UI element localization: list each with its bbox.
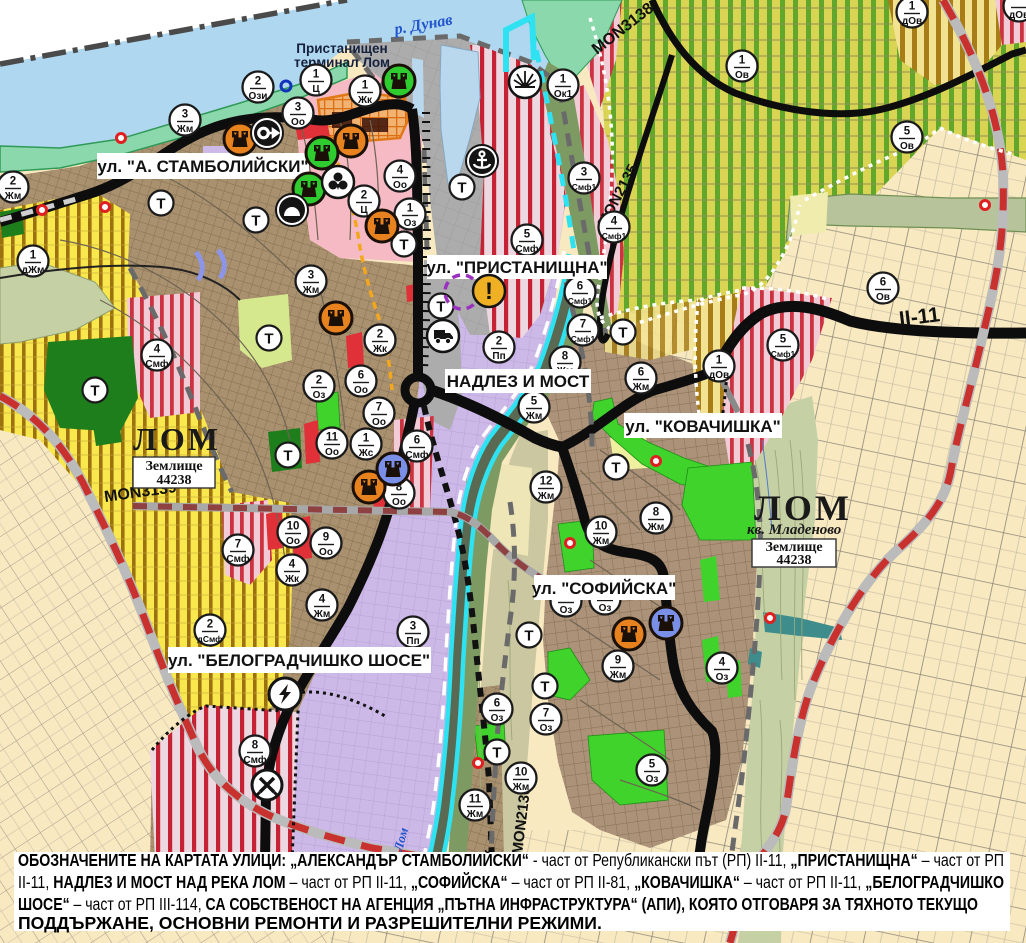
svg-text:7: 7	[580, 319, 586, 331]
svg-text:Смф: Смф	[515, 243, 538, 255]
svg-text:Т: Т	[457, 180, 466, 197]
svg-text:Оз: Оз	[646, 774, 659, 785]
svg-text:Т: Т	[90, 383, 99, 400]
svg-text:8: 8	[252, 740, 259, 752]
svg-text:дСмф: дСмф	[197, 634, 223, 644]
svg-text:Оз: Оз	[599, 603, 612, 614]
svg-text:4: 4	[289, 559, 296, 571]
svg-text:ОБОЗНАЧЕНИТЕ НА КАРТАТА УЛИЦИ:: ОБОЗНАЧЕНИТЕ НА КАРТАТА УЛИЦИ: „АЛЕКСАНД…	[18, 849, 1004, 870]
svg-text:12: 12	[540, 476, 553, 488]
svg-text:6: 6	[638, 367, 644, 379]
svg-text:10: 10	[515, 767, 528, 779]
svg-text:Жм: Жм	[632, 382, 649, 393]
svg-text:Смф: Смф	[226, 553, 249, 565]
svg-text:5: 5	[524, 229, 531, 241]
svg-text:Жм: Жм	[647, 522, 664, 533]
svg-text:Т: Т	[492, 745, 501, 762]
svg-text:!: !	[485, 278, 493, 305]
svg-text:2: 2	[255, 76, 261, 88]
svg-text:Жк: Жк	[357, 95, 373, 106]
svg-text:дОв: дОв	[902, 16, 922, 27]
svg-text:9: 9	[323, 532, 329, 544]
svg-text:3: 3	[410, 621, 416, 633]
svg-text:Оо: Оо	[325, 447, 339, 458]
svg-text:Оо: Оо	[286, 536, 300, 547]
svg-text:Жм: Жм	[313, 609, 330, 620]
svg-text:6: 6	[577, 281, 583, 293]
svg-text:Ов: Ов	[876, 292, 890, 303]
svg-text:Смф1: Смф1	[571, 334, 596, 344]
svg-text:Оз: Оз	[560, 605, 573, 616]
svg-text:Оз: Оз	[491, 713, 504, 724]
svg-text:2: 2	[361, 190, 367, 202]
svg-text:ул. "БЕЛОГРАДЧИШКО ШОСЕ": ул. "БЕЛОГРАДЧИШКО ШОСЕ"	[168, 651, 430, 670]
svg-text:Т: Т	[283, 448, 292, 465]
svg-text:Смф: Смф	[405, 449, 428, 461]
svg-text:6: 6	[494, 698, 500, 710]
svg-text:Ози: Ози	[249, 91, 268, 102]
svg-text:7: 7	[235, 539, 241, 551]
svg-text:ул. "КОВАЧИШКА": ул. "КОВАЧИШКА"	[625, 417, 781, 436]
svg-text:1: 1	[363, 433, 370, 445]
svg-text:2: 2	[496, 336, 502, 348]
svg-text:ПОДДЪРЖАНЕ, ОСНОВНИ РЕМОНТИ И: ПОДДЪРЖАНЕ, ОСНОВНИ РЕМОНТИ И РАЗРЕШИТЕЛ…	[18, 913, 602, 933]
svg-text:Ов: Ов	[900, 141, 914, 152]
svg-text:44238: 44238	[157, 473, 192, 488]
svg-text:ул. "СОФИЙСКА": ул. "СОФИЙСКА"	[532, 579, 677, 598]
svg-text:Пристанищен: Пристанищен	[296, 41, 387, 56]
svg-text:ул. "А. СТАМБОЛИЙСКИ": ул. "А. СТАМБОЛИЙСКИ"	[97, 157, 308, 176]
svg-text:1: 1	[407, 203, 414, 215]
svg-text:Т: Т	[251, 213, 260, 230]
svg-text:1: 1	[909, 1, 916, 13]
svg-text:2: 2	[10, 176, 16, 188]
svg-text:дОв: дОв	[1009, 10, 1026, 21]
svg-text:Смф1: Смф1	[568, 296, 593, 306]
svg-text:6: 6	[358, 370, 364, 382]
svg-text:Смф1: Смф1	[602, 231, 627, 241]
svg-text:2: 2	[377, 329, 383, 341]
svg-text:Оз: Оз	[404, 218, 417, 229]
svg-text:ул. "ПРИСТАНИЩНА": ул. "ПРИСТАНИЩНА"	[426, 258, 607, 277]
svg-text:Жм: Жм	[609, 670, 626, 681]
svg-text:6: 6	[880, 277, 886, 289]
svg-text:Т: Т	[156, 196, 165, 213]
svg-text:Оз: Оз	[540, 723, 553, 734]
svg-text:Жм: Жм	[4, 191, 21, 202]
svg-text:НАДЛЕЗ И МОСТ: НАДЛЕЗ И МОСТ	[447, 372, 590, 391]
svg-text:2: 2	[207, 619, 213, 631]
svg-text:Т: Т	[618, 325, 627, 342]
svg-text:5: 5	[649, 759, 656, 771]
svg-text:Жм: Жм	[525, 411, 542, 422]
svg-text:4: 4	[719, 657, 726, 669]
svg-text:7: 7	[543, 708, 549, 720]
svg-text:Жм: Жм	[592, 536, 609, 547]
svg-text:Смф1: Смф1	[572, 182, 597, 192]
svg-text:3: 3	[308, 270, 314, 282]
svg-text:11: 11	[326, 432, 339, 444]
svg-text:5: 5	[904, 126, 911, 138]
svg-text:1: 1	[739, 55, 746, 67]
svg-text:Смф1: Смф1	[771, 349, 796, 359]
svg-text:Жм: Жм	[176, 124, 193, 135]
svg-text:1: 1	[313, 69, 320, 81]
svg-text:Жм: Жм	[302, 285, 319, 296]
svg-text:1: 1	[716, 355, 723, 367]
svg-text:1: 1	[30, 250, 37, 262]
svg-text:4: 4	[154, 344, 161, 356]
svg-text:Ц: Ц	[312, 84, 320, 95]
svg-text:3: 3	[295, 102, 301, 114]
svg-text:Т: Т	[264, 331, 273, 348]
svg-text:Оо: Оо	[291, 117, 305, 128]
svg-text:Жм: Жм	[512, 782, 529, 793]
svg-text:ШОСЕ“ – част от РП III-114, СА: ШОСЕ“ – част от РП III-114, СА СОБСТВЕНО…	[18, 894, 978, 914]
svg-text:Оз: Оз	[716, 672, 729, 683]
svg-text:Пп: Пп	[406, 636, 419, 647]
svg-text:Ов: Ов	[735, 70, 749, 81]
svg-text:Т: Т	[436, 299, 445, 316]
svg-text:Ц: Ц	[360, 205, 368, 216]
svg-text:дЖм: дЖм	[22, 265, 45, 276]
svg-text:Землище: Землище	[145, 459, 202, 474]
svg-text:10: 10	[287, 521, 300, 533]
svg-text:Жк: Жк	[372, 344, 388, 355]
svg-text:3: 3	[581, 167, 587, 179]
svg-text:11: 11	[469, 794, 482, 806]
svg-text:2: 2	[316, 375, 322, 387]
svg-text:4: 4	[397, 165, 404, 177]
svg-text:5: 5	[780, 334, 787, 346]
svg-text:10: 10	[595, 521, 608, 533]
svg-text:ЛОМ: ЛОМ	[133, 421, 221, 457]
svg-text:Жм: Жм	[537, 491, 554, 502]
svg-text:4: 4	[319, 594, 326, 606]
svg-text:5: 5	[531, 396, 538, 408]
svg-text:Оо: Оо	[392, 497, 406, 508]
svg-text:Оо: Оо	[372, 417, 386, 428]
svg-text:Жс: Жс	[358, 448, 374, 459]
svg-text:Оо: Оо	[319, 547, 333, 558]
svg-text:дОв: дОв	[709, 370, 729, 381]
svg-text:Оо: Оо	[393, 180, 407, 191]
svg-text:Т: Т	[540, 679, 549, 696]
svg-text:кв. Младеново: кв. Младеново	[747, 522, 841, 538]
svg-text:3: 3	[182, 109, 188, 121]
svg-text:II-11, НАДЛЕЗ И МОСТ НАД РЕКА: II-11, НАДЛЕЗ И МОСТ НАД РЕКА ЛОМ – част…	[18, 871, 1004, 892]
svg-text:8: 8	[562, 351, 569, 363]
svg-text:Смф: Смф	[145, 358, 168, 370]
svg-text:Т: Т	[611, 460, 620, 477]
svg-text:Смф: Смф	[243, 754, 266, 766]
svg-text:1: 1	[362, 80, 369, 92]
svg-text:Жк: Жк	[284, 574, 300, 585]
svg-text:1: 1	[560, 74, 567, 86]
svg-text:Пп: Пп	[492, 351, 505, 362]
svg-text:Т: Т	[399, 237, 408, 254]
svg-text:Оо: Оо	[354, 385, 368, 396]
svg-text:Т: Т	[524, 628, 533, 645]
svg-text:Оз: Оз	[313, 390, 326, 401]
svg-text:Жм: Жм	[466, 809, 483, 820]
svg-text:9: 9	[615, 655, 621, 667]
svg-text:4: 4	[611, 216, 618, 228]
svg-text:6: 6	[414, 435, 420, 447]
svg-text:44238: 44238	[777, 553, 812, 568]
svg-text:Ок1: Ок1	[554, 89, 573, 100]
svg-text:8: 8	[653, 507, 660, 519]
svg-text:7: 7	[376, 402, 382, 414]
